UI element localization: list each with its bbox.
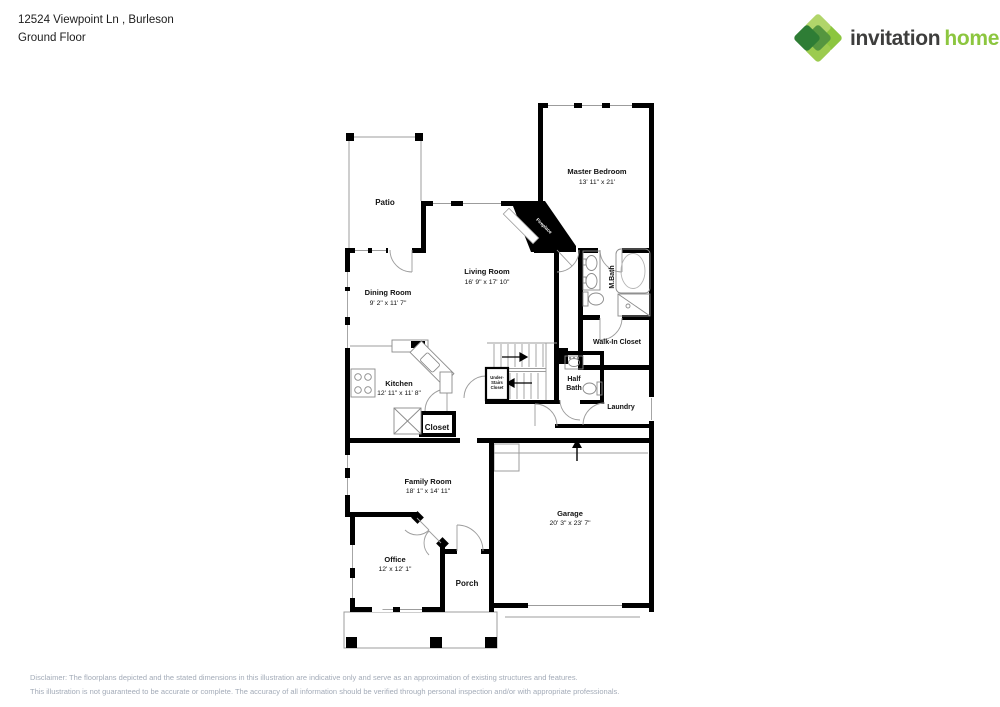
toilet-tank (583, 292, 588, 306)
label-family-room: Family Room (404, 477, 451, 486)
stove (351, 369, 375, 397)
floor-plan: Fireplace (0, 0, 1000, 707)
dims-dining-room: 9' 2" x 11' 7" (370, 300, 407, 307)
disclaimer-line-2: This illustration is not guaranteed to b… (30, 685, 619, 699)
sink-2 (586, 274, 597, 289)
label-office: Office (384, 555, 405, 564)
label-dining-room: Dining Room (365, 288, 412, 297)
patio-outline (349, 137, 421, 248)
dims-family-room: 18' 1" x 14' 11" (406, 488, 451, 495)
label-half-bath-1: Half (567, 376, 581, 383)
dims-master-bedroom: 13' 11" x 21' (579, 179, 615, 186)
patio-door (390, 250, 412, 272)
garage-step (494, 444, 519, 471)
porch-post-middle (430, 637, 442, 648)
label-porch: Porch (456, 579, 479, 588)
kitchen-counter-end (440, 372, 452, 393)
laundry-door (583, 403, 605, 425)
fireplace: Fireplace (503, 201, 576, 252)
porch-post-left (346, 637, 357, 648)
office-french-door-right (424, 531, 429, 555)
stairs-up-arrow (520, 353, 527, 361)
label-under-stairs-3: Closet (491, 385, 504, 390)
office-french-door-left (405, 530, 429, 535)
under-stairs-door (464, 376, 486, 398)
label-patio: Patio (375, 198, 395, 207)
label-kitchen: Kitchen (385, 379, 413, 388)
floorplan-page: 12524 Viewpoint Ln , Burleson Ground Flo… (0, 0, 1000, 707)
dims-living-room: 16' 9" x 17' 10" (465, 279, 510, 286)
porch-strip (344, 612, 497, 648)
half-bath-sink (569, 359, 580, 367)
sink-1 (586, 256, 597, 271)
dims-kitchen: 12' 11" x 11' 8" (377, 390, 421, 397)
porch-post-right (485, 637, 497, 648)
label-living-room: Living Room (464, 267, 510, 276)
label-walk-in-closet: Walk-In Closet (593, 339, 642, 346)
dims-garage: 20' 3" x 23' 7" (549, 520, 591, 527)
back-hall-door (535, 404, 557, 426)
label-half-bath-2: Bath (566, 385, 582, 392)
label-closet: Closet (425, 423, 450, 432)
disclaimer-line-1: Disclaimer: The floorplans depicted and … (30, 671, 619, 685)
patio-post-left (346, 133, 354, 141)
disclaimer: Disclaimer: The floorplans depicted and … (30, 671, 619, 698)
stairs (486, 343, 557, 400)
label-garage: Garage (557, 509, 583, 518)
label-master-bath: M.Bath (609, 265, 616, 288)
walk-in-closet-door (600, 318, 622, 340)
front-door (457, 525, 483, 551)
label-master-bedroom: Master Bedroom (567, 167, 627, 176)
label-laundry: Laundry (607, 404, 635, 411)
window-mullion (368, 248, 372, 253)
toilet-bowl (589, 293, 604, 305)
half-bath-toilet-bowl (583, 383, 596, 394)
patio-post-right (415, 133, 423, 141)
dims-office: 12' x 12' 1" (379, 566, 413, 573)
